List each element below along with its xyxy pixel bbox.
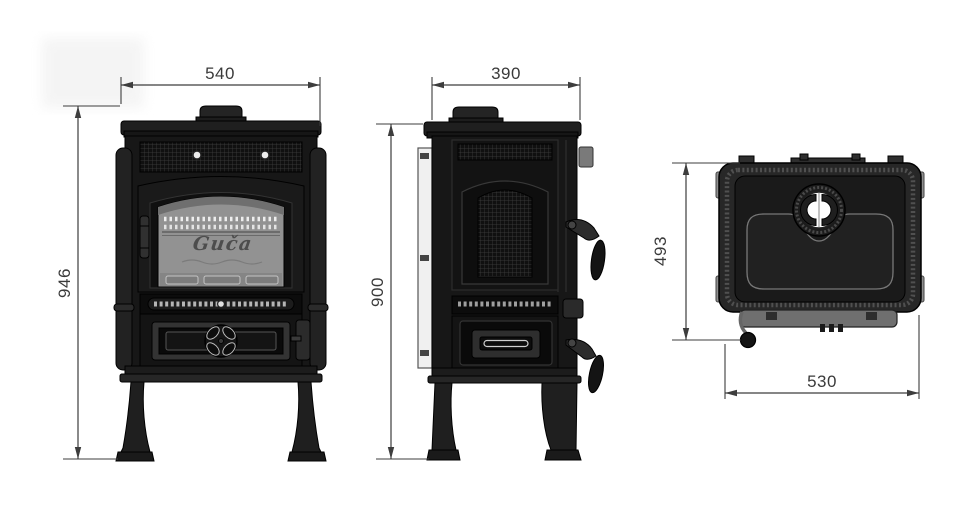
side-back-foot xyxy=(427,450,460,460)
front-height-label: 946 xyxy=(55,268,74,298)
damper-tab xyxy=(579,147,593,167)
front-tooth-2 xyxy=(829,324,834,332)
handle-pivot xyxy=(568,339,576,347)
air-vent-rosette xyxy=(205,325,238,358)
hinge-lug-2 xyxy=(866,312,877,320)
front-tooth-3 xyxy=(838,324,843,332)
top-view xyxy=(716,154,924,348)
side-front-foot xyxy=(545,450,581,460)
drawing-canvas: Guča xyxy=(0,0,970,515)
door-hinge xyxy=(140,216,149,258)
shield-tab-1 xyxy=(420,153,429,159)
handle-grip xyxy=(589,239,607,280)
ash-door-latch-pin xyxy=(291,336,301,341)
top-width-label: 530 xyxy=(807,372,837,391)
top-depth-label: 493 xyxy=(651,236,670,266)
front-tooth-1 xyxy=(820,324,825,332)
shield-tab-3 xyxy=(420,350,429,356)
right-vent-knob xyxy=(261,151,269,159)
front-width-label: 540 xyxy=(205,64,235,83)
flue-opening xyxy=(793,184,845,236)
front-view: Guča xyxy=(114,106,328,461)
side-base-lip xyxy=(428,376,581,383)
side-height-label: 900 xyxy=(368,277,387,307)
background-smudge xyxy=(42,38,144,108)
handle-knob xyxy=(741,333,756,348)
leg xyxy=(121,382,150,452)
brand-logo: Guča xyxy=(191,232,254,255)
base-lip xyxy=(120,374,322,382)
foot xyxy=(116,452,154,461)
technical-drawing: Guča xyxy=(0,0,970,515)
left-pilaster-ring xyxy=(114,304,134,311)
upper-grille xyxy=(140,142,302,172)
handle-pivot xyxy=(568,221,576,229)
side-arch-grille xyxy=(478,190,532,277)
handle-grip xyxy=(586,354,607,394)
back-bump-1 xyxy=(800,154,808,160)
front-legs xyxy=(116,382,326,461)
hinge-lug-1 xyxy=(766,312,777,320)
side-width-label: 390 xyxy=(491,64,521,83)
middle-band-knob xyxy=(218,301,225,308)
side-lower-slot xyxy=(480,337,532,350)
side-top-grille xyxy=(458,144,552,160)
dimension-front-height: 946 xyxy=(55,106,120,459)
left-vent-knob xyxy=(193,151,201,159)
right-pilaster-ring xyxy=(308,304,328,311)
side-back-leg xyxy=(432,383,456,450)
shield-tab-2 xyxy=(420,255,429,261)
side-view xyxy=(418,107,607,460)
back-bump-2 xyxy=(852,154,860,160)
latch-keeper xyxy=(563,299,583,318)
left-pilaster xyxy=(116,148,132,370)
sill-ornament-2 xyxy=(204,276,240,284)
right-pilaster xyxy=(310,148,326,370)
sill-ornament-3 xyxy=(246,276,278,284)
sill-ornament-1 xyxy=(166,276,198,284)
side-front-leg xyxy=(542,383,577,450)
